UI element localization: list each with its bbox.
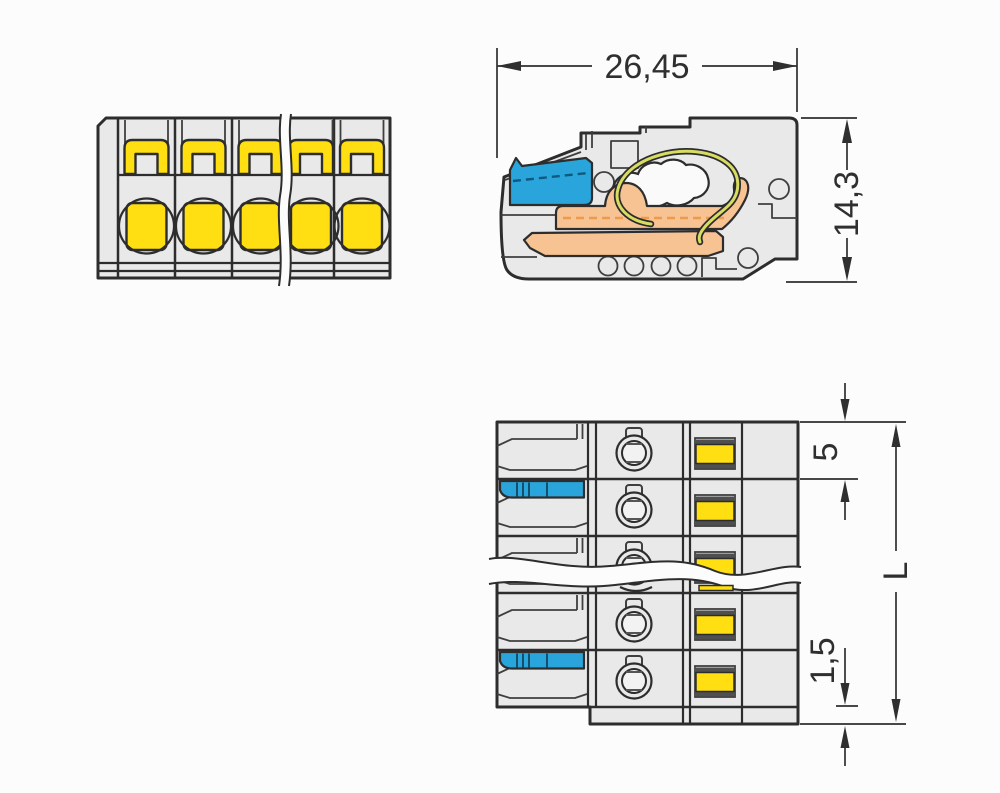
dim-total-length: L <box>877 424 915 722</box>
busbar-lower <box>524 231 723 256</box>
operating-lever-side <box>510 158 592 205</box>
side-section-view <box>501 118 797 279</box>
connector-engineering-drawing: 26,45 14,3 5 1,5 L <box>0 0 1000 793</box>
top-lever-blue-row-2 <box>500 481 584 498</box>
front-view <box>98 114 390 286</box>
dim-label-total-length: L <box>877 562 915 581</box>
dim-label-end-offset: 1,5 <box>804 637 842 684</box>
top-lever-blue-row-5 <box>500 652 584 669</box>
dim-label-pole-pitch: 5 <box>807 443 845 462</box>
dim-end-offset: 1,5 <box>800 637 906 766</box>
front-break-line <box>279 114 292 286</box>
top-view <box>489 422 801 724</box>
dim-label-overall-height: 14,3 <box>828 171 866 237</box>
dim-label-overall-width: 26,45 <box>604 48 689 86</box>
technical-drawing-page: 26,45 14,3 5 1,5 L <box>0 0 1000 793</box>
dim-pole-pitch: 5 <box>800 383 906 520</box>
